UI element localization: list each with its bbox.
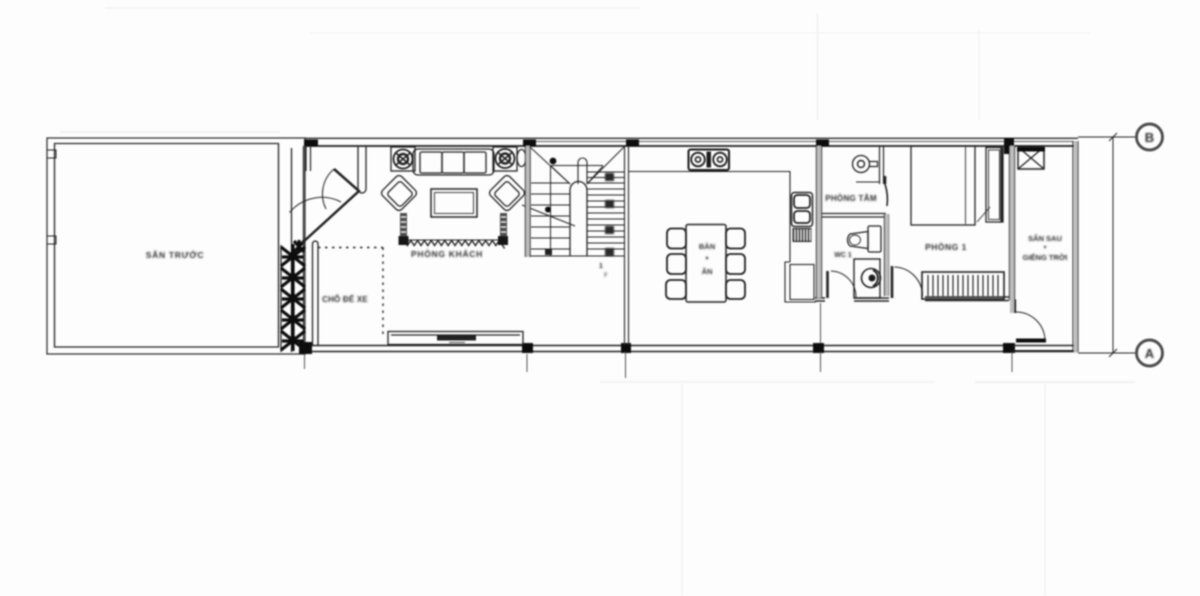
svg-text:WC 1: WC 1 bbox=[834, 252, 852, 259]
svg-text:A: A bbox=[1145, 346, 1155, 361]
svg-text:SÂN TRƯỚC: SÂN TRƯỚC bbox=[146, 249, 204, 260]
svg-text:PHÒNG 1: PHÒNG 1 bbox=[925, 241, 967, 252]
svg-text:BÀN: BÀN bbox=[699, 242, 715, 251]
svg-text:B: B bbox=[1145, 130, 1154, 145]
svg-text:CHỖ ĐỂ XE: CHỖ ĐỂ XE bbox=[322, 295, 368, 304]
svg-text:PHÒNG KHÁCH: PHÒNG KHÁCH bbox=[411, 248, 483, 259]
svg-text:F: F bbox=[604, 273, 608, 279]
svg-text:GIẾNG TRỜI: GIẾNG TRỜI bbox=[1023, 252, 1068, 262]
svg-text:PHÒNG TẮM: PHÒNG TẮM bbox=[825, 194, 877, 203]
svg-text:ĂN: ĂN bbox=[702, 267, 713, 276]
svg-text:SÂN SAU: SÂN SAU bbox=[1028, 234, 1062, 243]
svg-text:1: 1 bbox=[599, 263, 603, 270]
